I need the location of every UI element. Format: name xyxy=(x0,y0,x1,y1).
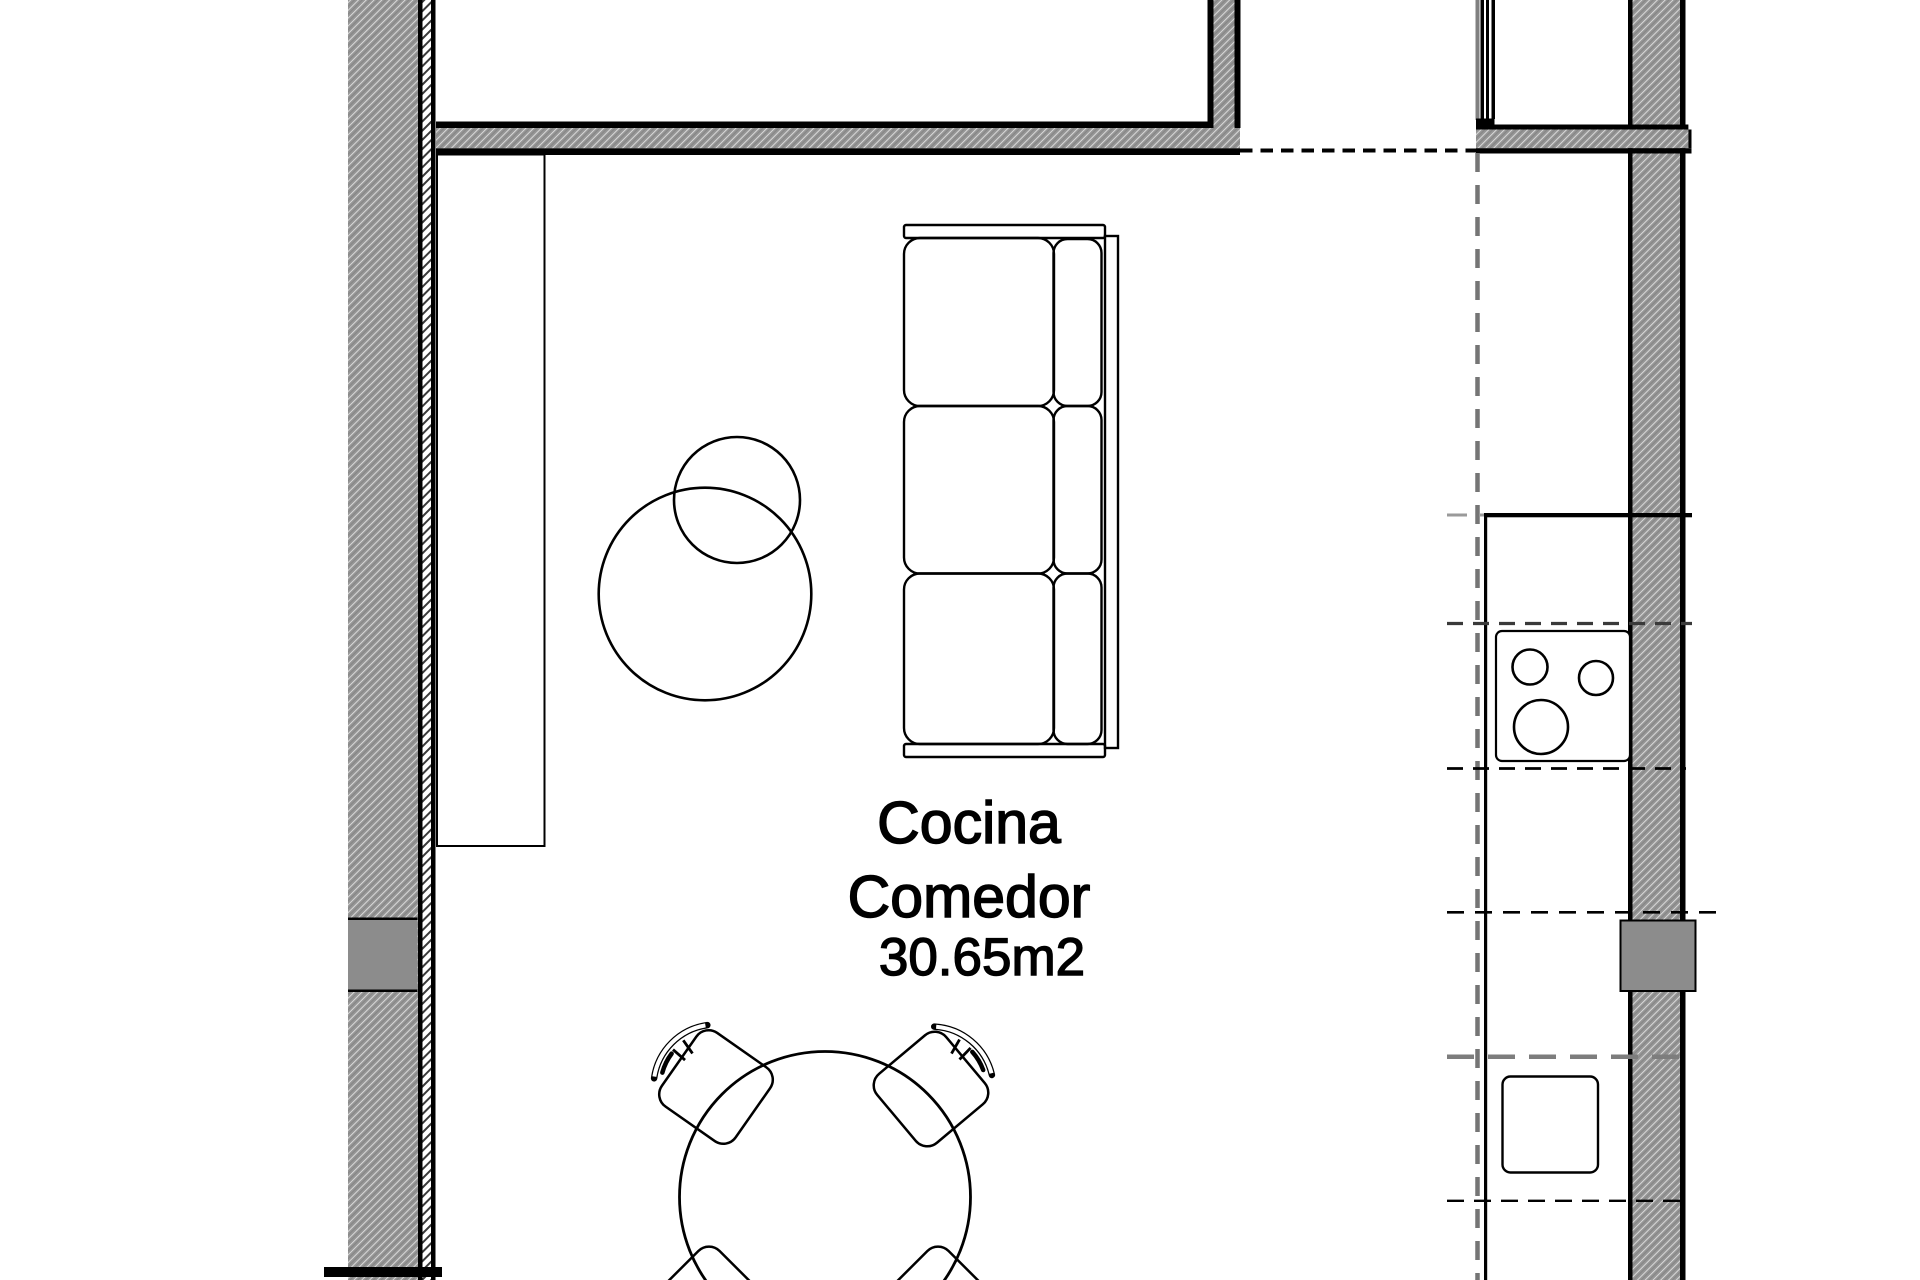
svg-text:Cocina: Cocina xyxy=(877,790,1061,856)
svg-text:Comedor: Comedor xyxy=(848,864,1091,930)
svg-text:30.65m2: 30.65m2 xyxy=(879,928,1085,987)
